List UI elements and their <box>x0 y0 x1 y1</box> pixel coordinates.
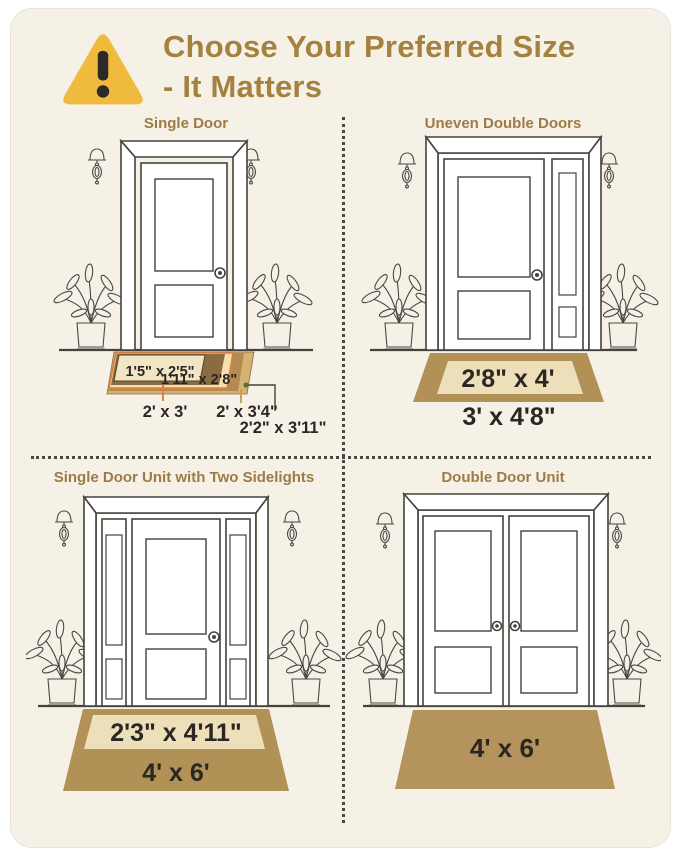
mat-label-outer: 3' x 4'8" <box>462 403 555 431</box>
side-panel-lower <box>559 307 576 337</box>
single-door-drawing <box>121 141 247 350</box>
mat-label-inner: 2'3" x 4'11" <box>110 719 242 747</box>
door-panel-lower <box>155 285 213 337</box>
door-panel-lower <box>146 649 206 699</box>
quadrant-single-door-sidelights: Single Door Unit with Two Sidelights <box>26 469 342 839</box>
wall-sconce-icon <box>283 511 301 546</box>
mat-label: 4' x 6' <box>470 733 540 763</box>
door-panel-lower <box>458 291 530 339</box>
potted-plant-icon <box>360 264 435 349</box>
potted-plant-icon <box>238 264 313 349</box>
double-door-scene: 4' x 6' <box>345 469 661 839</box>
double-door-drawing <box>404 494 608 706</box>
uneven-double-doors-scene: 2'8" x 4' 3' x 4'8" <box>345 115 661 449</box>
green-dot <box>243 382 248 387</box>
mat-label-outer: 4' x 6' <box>142 759 210 787</box>
mat-label-size3: 2' x 3' <box>143 403 188 421</box>
side-panel-upper <box>559 173 576 295</box>
mat-label-size2: 1'11" x 2'8" <box>161 372 237 388</box>
wall-sconce-icon <box>88 149 106 184</box>
potted-plant-icon <box>52 264 127 349</box>
quadrant-double-door-unit: Double Door Unit <box>345 469 661 839</box>
sidelights-door-drawing <box>84 497 268 706</box>
wall-sconce-icon <box>398 153 416 188</box>
sidelights-scene: 2'3" x 4'11" 4' x 6' <box>26 469 342 839</box>
page-title-line1: Choose Your Preferred Size <box>163 27 575 67</box>
quadrant-single-door: Single Door <box>29 115 343 449</box>
door-panel-upper <box>458 177 530 277</box>
infographic-card: Choose Your Preferred Size - It Matters … <box>10 8 671 848</box>
mat-label-inner: 2'8" x 4' <box>461 365 554 393</box>
page-title-line2: - It Matters <box>163 67 575 107</box>
potted-plant-icon <box>267 620 342 705</box>
door-panel-upper <box>146 539 206 634</box>
page-title: Choose Your Preferred Size - It Matters <box>163 27 575 107</box>
wall-sconce-icon <box>55 511 73 546</box>
warning-triangle-icon <box>61 29 145 116</box>
wall-sconce-icon <box>376 513 394 548</box>
quadrant-uneven-double-doors: Uneven Double Doors <box>345 115 661 449</box>
uneven-double-door-drawing <box>426 137 601 350</box>
mat-label-size5: 2'2" x 3'11" <box>240 419 327 437</box>
wall-sconce-icon <box>608 513 626 548</box>
wall-sconce-icon <box>600 153 618 188</box>
horizontal-dotted-divider <box>31 456 651 459</box>
single-door-scene: 1'5" x 2'5" 1'11" x 2'8" 2' x 3' 2' x 3'… <box>29 115 343 449</box>
door-panel-upper <box>155 179 213 271</box>
